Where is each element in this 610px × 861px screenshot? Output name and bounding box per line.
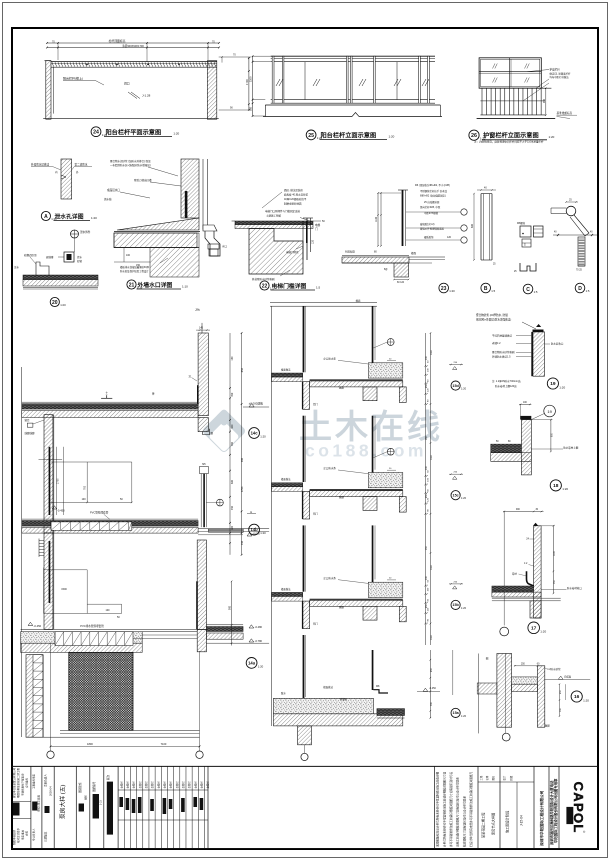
svg-text:24: 24 <box>93 130 99 136</box>
svg-text:干挂石材幕墙做法: 干挂石材幕墙做法 <box>492 333 513 337</box>
svg-text:均布中距栏杆做法: 均布中距栏杆做法 <box>550 75 570 79</box>
svg-text:会签栏: 会签栏 <box>181 781 185 789</box>
svg-text:建设单位某某置业有限公司: 建设单位某某置业有限公司 <box>12 767 16 798</box>
svg-text:1:5: 1:5 <box>586 289 590 293</box>
svg-text:900: 900 <box>543 98 546 103</box>
svg-text:防水卷材上翻: 防水卷材上翻 <box>563 445 579 449</box>
svg-text:线脚线脚: 线脚线脚 <box>25 431 36 435</box>
svg-text:版次: 版次 <box>106 774 110 780</box>
svg-text:名称: 名称 <box>485 775 489 780</box>
svg-text:会签栏: 会签栏 <box>132 781 136 789</box>
svg-text:阳台栏杆平面示意图: 阳台栏杆平面示意图 <box>106 128 162 136</box>
svg-text:1:20: 1:20 <box>173 132 179 136</box>
svg-text:60厚配筋: 60厚配筋 <box>345 250 355 254</box>
svg-text:电梯门槛详图: 电梯门槛详图 <box>272 282 307 290</box>
svg-text:核对图纸尺寸如有疑问及时与设计单位联系: 核对图纸尺寸如有疑问及时与设计单位联系 <box>462 796 466 847</box>
svg-text:基准线或标高: 基准线或标高 <box>557 111 573 115</box>
svg-text:铝门: 铝门 <box>313 512 318 516</box>
svg-text:1:20: 1:20 <box>449 289 455 293</box>
svg-text:25: 25 <box>308 133 314 139</box>
svg-text:会签栏: 会签栏 <box>150 781 154 789</box>
svg-text:某某花园二期工程: 某某花园二期工程 <box>481 812 486 838</box>
svg-text:14a: 14a <box>248 660 256 665</box>
svg-text:楼板排水找坡层最薄处30厚: 楼板排水找坡层最薄处30厚 <box>120 265 150 269</box>
svg-text:外墙防水层做法: 外墙防水层做法 <box>31 163 50 167</box>
svg-text:350: 350 <box>231 441 234 446</box>
svg-text:-0.450: -0.450 <box>57 509 65 513</box>
svg-text:防水卷材收口: 防水卷材收口 <box>567 586 583 590</box>
svg-text:B: B <box>484 286 488 292</box>
svg-text:14b: 14b <box>250 527 258 532</box>
svg-text:踢脚: 踢脚 <box>339 605 344 609</box>
svg-text:净距900X90X1700: 净距900X90X1700 <box>122 44 144 48</box>
svg-text:60 120: 60 120 <box>397 282 405 284</box>
svg-text:1100: 1100 <box>249 76 253 82</box>
svg-text:深圳市福田区梅林路华阳国际设计大厦电话: 深圳市福田区梅林路华阳国际设计大厦电话 <box>549 780 554 845</box>
svg-text:15b: 15b <box>452 603 459 607</box>
svg-text:1:20: 1:20 <box>91 216 97 220</box>
svg-text:卷材: 卷材 <box>512 572 517 576</box>
svg-text:聚合物砂浆 (20厚防水, 防裂: 聚合物砂浆 (20厚防水, 防裂 <box>476 313 508 317</box>
svg-text:19: 19 <box>550 381 556 387</box>
svg-text:楼面: 楼面 <box>356 299 361 303</box>
svg-text:1:20: 1:20 <box>389 135 395 139</box>
svg-text:2016-04: 2016-04 <box>49 786 53 796</box>
svg-text:2750: 2750 <box>241 486 244 492</box>
svg-text:楼面做法: 楼面做法 <box>281 477 291 481</box>
svg-text:450: 450 <box>231 505 234 510</box>
svg-text:1800: 1800 <box>87 742 93 746</box>
svg-text:铝门: 铝门 <box>313 621 318 625</box>
svg-text:制图审核日期: 制图审核日期 <box>12 829 16 845</box>
svg-text:子项名称地下室泵房: 子项名称地下室泵房 <box>20 773 24 796</box>
svg-text:企口防水条: 企口防水条 <box>323 357 336 361</box>
svg-text:电梯门口预埋件与门槛固定连接: 电梯门口预埋件与门槛固定连接 <box>265 209 301 213</box>
svg-text:楼面做法: 楼面做法 <box>323 685 333 689</box>
svg-text:井道壁防水砂浆粉刷: 井道壁防水砂浆粉刷 <box>252 277 275 281</box>
svg-text:土木在线: 土木在线 <box>299 408 443 445</box>
svg-text:外墙水口详图: 外墙水口详图 <box>138 281 173 289</box>
svg-text:嵌缝膏: 嵌缝膏 <box>46 255 54 259</box>
svg-text:防潮层: 防潮层 <box>340 697 348 701</box>
svg-text:120: 120 <box>231 525 234 530</box>
svg-text:15a: 15a <box>453 711 460 715</box>
svg-text:18: 18 <box>553 483 559 489</box>
svg-text:工程: 工程 <box>479 775 483 780</box>
svg-text:70 25: 70 25 <box>576 270 582 272</box>
svg-text:楼面做法: 楼面做法 <box>281 368 291 372</box>
svg-text:会签: 会签 <box>25 830 29 836</box>
svg-text:老墙1:2: 老墙1:2 <box>492 341 501 345</box>
svg-text:16: 16 <box>574 694 580 700</box>
svg-text:会签栏: 会签栏 <box>175 781 179 789</box>
svg-text:深圳市华阳国际工程设计有限公司: 深圳市华阳国际工程设计有限公司 <box>539 790 544 846</box>
svg-text:阳台栏杆(楼上): 阳台栏杆(楼上) <box>63 76 83 81</box>
svg-text:1:20: 1:20 <box>540 630 546 634</box>
svg-text:1:5: 1:5 <box>491 289 495 293</box>
svg-text:护窗栏杆: 护窗栏杆 <box>550 68 561 72</box>
svg-text:600: 600 <box>231 479 234 484</box>
svg-text:1:20: 1:20 <box>461 714 467 718</box>
svg-text:450: 450 <box>231 392 234 397</box>
svg-text:450: 450 <box>241 540 244 545</box>
svg-text:合同编号: 合同编号 <box>25 777 29 788</box>
svg-text:1:5: 1:5 <box>316 285 321 289</box>
svg-text:华阳国际工程设计股份有限公司出图专用章: 华阳国际工程设计股份有限公司出图专用章 <box>553 778 558 843</box>
svg-text:泄水饰件: 泄水饰件 <box>80 230 91 234</box>
svg-text:1:20: 1:20 <box>461 496 467 500</box>
svg-text:-0.450: -0.450 <box>34 624 42 628</box>
svg-text:17: 17 <box>531 626 537 632</box>
svg-text:21: 21 <box>129 282 135 288</box>
svg-text:1:20: 1:20 <box>260 435 266 439</box>
svg-text:壁纸刀裁出凹槽: 壁纸刀裁出凹槽 <box>134 178 152 182</box>
svg-text:会签栏: 会签栏 <box>138 781 142 789</box>
svg-text:玻璃胶封(1:2): 玻璃胶封(1:2) <box>420 222 435 226</box>
svg-text:22: 22 <box>262 283 268 289</box>
svg-text:26: 26 <box>471 133 477 139</box>
svg-text:洞口: 洞口 <box>124 82 130 86</box>
svg-text:楼面做法: 楼面做法 <box>281 587 291 591</box>
svg-text:防水层及保护层见工程设计: 防水层及保护层见工程设计 <box>120 269 149 273</box>
svg-text:审定批准: 审定批准 <box>20 829 24 840</box>
svg-text:朝: 朝 <box>486 657 489 661</box>
svg-text:1:20: 1:20 <box>562 487 568 491</box>
svg-text:20: 20 <box>52 300 58 306</box>
svg-text:J-15: J-15 <box>100 800 103 805</box>
svg-text:会签栏: 会签栏 <box>162 781 166 789</box>
svg-text:聚合物水泥砂浆 (加防水剂掺合) 保温: 聚合物水泥砂浆 (加防水剂掺合) 保温 <box>110 159 151 163</box>
svg-text:泛水: 泛水 <box>14 265 20 269</box>
svg-text:项目负责人: 项目负责人 <box>44 774 48 787</box>
svg-text:1:20: 1:20 <box>549 135 555 139</box>
svg-text:图名: 图名 <box>491 775 495 780</box>
svg-text:玻璃爪件预埋锚固连接: 玻璃爪件预埋锚固连接 <box>420 227 445 231</box>
svg-text:电梯: 电梯 <box>315 223 321 227</box>
svg-text:图别建施: 图别建施 <box>78 782 82 793</box>
svg-text:注: 1.2厚JS防水700mm高,: 注: 1.2厚JS防水700mm高, <box>492 379 522 383</box>
svg-text:≡: ≡ <box>524 243 526 247</box>
svg-text:150: 150 <box>231 356 234 361</box>
svg-text:2900: 2900 <box>431 454 433 460</box>
svg-text:改施工前请仔细核对图纸尺寸如有疑问及时与设计单位联系: 改施工前请仔细核对图纸尺寸如有疑问及时与设计单位联系 <box>456 777 460 847</box>
svg-text:1:20: 1:20 <box>258 664 264 668</box>
svg-text:J%: J% <box>195 308 200 312</box>
svg-text:短管: 短管 <box>77 259 83 263</box>
svg-text:1:20: 1:20 <box>583 698 589 702</box>
svg-text:1:2防水砂浆: 1:2防水砂浆 <box>547 667 561 671</box>
svg-text:外墙防水做法1.5: 外墙防水做法1.5 <box>492 355 511 359</box>
svg-text:会签栏: 会签栏 <box>144 781 148 789</box>
svg-text:23: 23 <box>441 286 447 292</box>
svg-text:2900: 2900 <box>431 634 433 640</box>
svg-text:耐磨金刚砂地面: 耐磨金刚砂地面 <box>284 202 302 206</box>
svg-text:土建施工预留: 土建施工预留 <box>266 214 282 218</box>
svg-text:会签栏: 会签栏 <box>156 781 160 789</box>
svg-text:900: 900 <box>241 457 244 462</box>
svg-text:本图纸版权归设计单位所有未经许可不得复制修改施工前请仔细: 本图纸版权归设计单位所有未经许可不得复制修改施工前请仔细 <box>436 771 440 847</box>
svg-text:砼翻边压顶: 砼翻边压顶 <box>24 253 37 257</box>
svg-text:铝门: 铝门 <box>313 402 318 406</box>
svg-text:结构板 40 厚水泥砂浆: 结构板 40 厚水泥砂浆 <box>284 193 309 197</box>
svg-text:PVC排水管预埋套管: PVC排水管预埋套管 <box>80 624 104 628</box>
svg-text:会签栏: 会签栏 <box>200 781 204 789</box>
svg-text:100: 100 <box>106 609 111 612</box>
svg-text:M8螺栓: M8螺栓 <box>517 221 526 225</box>
svg-text:企口防水条: 企口防水条 <box>323 466 336 470</box>
svg-text:H: H <box>250 510 252 514</box>
svg-text:护窗栏杆立面示意图: 护窗栏杆立面示意图 <box>483 132 539 140</box>
svg-text:图号: 图号 <box>84 795 88 800</box>
svg-text:许可不得复制修改施工前请仔细核对图纸尺寸如有疑问及时与设: 许可不得复制修改施工前请仔细核对图纸尺寸如有疑问及时与设 <box>449 771 453 847</box>
svg-text:审核人签字日期: 审核人签字日期 <box>36 795 40 812</box>
svg-text:会签栏: 会签栏 <box>187 781 191 789</box>
svg-text:项目名称某某花园二期工程: 项目名称某某花园二期工程 <box>16 767 20 798</box>
svg-text:co188.com: co188.com <box>305 441 427 461</box>
svg-text:防水层收口: 防水层收口 <box>551 342 564 346</box>
svg-text:钢丝网)+饰面层(防水增强做法): 钢丝网)+饰面层(防水增强做法) <box>476 318 511 322</box>
svg-text:工程编号审定: 工程编号审定 <box>32 773 36 789</box>
svg-text:聚合物防水砂浆粉刷: 聚合物防水砂浆粉刷 <box>492 350 515 354</box>
svg-text:归设计单位所有未经许可不得复制修改施工前请仔细核对图纸尺: 归设计单位所有未经许可不得复制修改施工前请仔细核对图纸尺 <box>469 771 473 847</box>
svg-text:25 自攻螺丝固: 25 自攻螺丝固 <box>424 200 440 204</box>
svg-text:硬质胶垫: 硬质胶垫 <box>424 235 434 239</box>
svg-text:不锈钢管栏杆扶手 仿木纹: 不锈钢管栏杆扶手 仿木纹 <box>420 189 448 193</box>
svg-text:14c: 14c <box>251 431 259 436</box>
svg-text:120: 120 <box>447 236 452 239</box>
svg-text:900: 900 <box>229 605 232 610</box>
svg-text:会签栏: 会签栏 <box>193 781 197 789</box>
svg-text:第二道防水: 第二道防水 <box>75 163 88 167</box>
svg-text:A: A <box>44 214 48 220</box>
svg-text:1:20: 1:20 <box>559 385 565 389</box>
svg-text:阳台栏杆立面示意图: 阳台栏杆立面示意图 <box>321 131 377 139</box>
svg-text:泄水孔详图: 泄水孔详图 <box>55 213 84 221</box>
svg-text:1700: 1700 <box>245 79 249 85</box>
svg-text:计单位所有未经许可不得复制修改施工前请仔细核对图纸尺寸如: 计单位所有未经许可不得复制修改施工前请仔细核对图纸尺寸如 <box>442 771 446 847</box>
svg-text:踢脚: 踢脚 <box>545 724 550 728</box>
svg-text:1:5: 1:5 <box>534 290 538 294</box>
svg-text:泵房节点大样图: 泵房节点大样图 <box>491 813 496 835</box>
svg-text:2750: 2750 <box>57 478 60 484</box>
svg-text:竖向栏杆Φ25, 中距: 竖向栏杆Φ25, 中距 <box>420 205 441 209</box>
svg-text:150: 150 <box>250 106 253 111</box>
svg-text:中距Φ76钢管: 中距Φ76钢管 <box>424 211 439 215</box>
svg-text:校对设计签字: 校对设计签字 <box>16 827 20 843</box>
svg-text:一布四涂防水层+饰面层(防水增强层): 一布四涂防水层+饰面层(防水增强层) <box>110 163 151 167</box>
svg-text:水口: 水口 <box>222 244 228 248</box>
svg-text:会签栏: 会签栏 <box>119 781 123 789</box>
svg-text:Φ6 (顶层收头Φ8+Φ2, 不小于M8): Φ6 (顶层收头Φ8+Φ2, 不小于M8) <box>415 183 450 187</box>
svg-text:会签栏: 会签栏 <box>125 781 129 789</box>
svg-text:做法(2), 防踏面栏杆: 做法(2), 防踏面栏杆 <box>550 71 572 75</box>
svg-text:40厚C20细石砼找平: 40厚C20细石砼找平 <box>284 197 307 201</box>
svg-text:楼面: 楼面 <box>411 251 417 255</box>
svg-text:成品铝水口: 成品铝水口 <box>107 188 120 192</box>
svg-text:300: 300 <box>231 424 234 429</box>
svg-text:19: 19 <box>547 409 552 414</box>
svg-text:800: 800 <box>471 223 474 228</box>
svg-text:门: 门 <box>315 227 318 231</box>
svg-text:J-15-04: J-15-04 <box>520 815 524 826</box>
svg-text:完成面: 完成面 <box>564 675 572 679</box>
svg-text:防水卷材上翻120高: 防水卷材上翻120高 <box>495 384 517 388</box>
svg-text:滴水线: 滴水线 <box>104 197 112 201</box>
svg-text:±0.000建筑: ±0.000建筑 <box>249 402 263 406</box>
svg-text:日期版本: 日期版本 <box>44 831 48 842</box>
svg-text:100: 100 <box>126 254 131 257</box>
svg-text:15c: 15c <box>453 494 459 498</box>
svg-text:土: 土 <box>105 391 108 395</box>
svg-text:企口防水条: 企口防水条 <box>323 576 336 580</box>
svg-text:100: 100 <box>82 498 87 501</box>
svg-text:120: 120 <box>312 239 315 244</box>
svg-text:PVC管预埋套管: PVC管预埋套管 <box>90 511 109 515</box>
svg-text:会签栏: 会签栏 <box>206 781 210 789</box>
svg-text:2900: 2900 <box>431 564 433 570</box>
svg-text:7100: 7100 <box>161 742 167 746</box>
svg-text:1100: 1100 <box>554 550 556 556</box>
svg-text:栏杆顶面标高: 栏杆顶面标高 <box>109 39 126 43</box>
svg-text:会签栏: 会签栏 <box>169 781 173 789</box>
svg-text:泄水: 泄水 <box>77 255 83 259</box>
svg-text:踢脚: 踢脚 <box>339 386 344 390</box>
svg-text:C: C <box>526 287 530 293</box>
svg-text:施工图设计阶段: 施工图设计阶段 <box>505 810 510 833</box>
svg-text:Φ89+Φ2 (含加强筋固定): Φ89+Φ2 (含加强筋固定) <box>420 194 446 198</box>
svg-text:踢脚: 踢脚 <box>339 495 344 499</box>
svg-text:2900: 2900 <box>431 349 433 355</box>
svg-text:D: D <box>578 286 582 292</box>
svg-text:1:20: 1:20 <box>461 606 467 610</box>
svg-text:-0.480: -0.480 <box>255 625 263 629</box>
svg-text:700: 700 <box>84 485 87 490</box>
svg-text:1100: 1100 <box>375 216 378 222</box>
svg-text:阶段: 阶段 <box>509 775 513 780</box>
svg-text:散水: 散水 <box>281 691 286 695</box>
svg-text:850: 850 <box>241 368 244 373</box>
svg-text:面层, 做法见装修: 面层, 做法见装修 <box>284 188 303 192</box>
svg-text:设计: 设计 <box>502 775 506 780</box>
svg-text:窗台: 窗台 <box>25 418 31 422</box>
svg-text:图纸编号: 图纸编号 <box>92 781 96 792</box>
svg-text:1:10: 1:10 <box>182 284 188 288</box>
svg-text:1:20: 1:20 <box>260 531 266 535</box>
svg-text:1:20: 1:20 <box>60 303 66 307</box>
svg-text:泵房大样 (五): 泵房大样 (五) <box>59 784 67 819</box>
svg-text:1:20: 1:20 <box>461 387 467 391</box>
svg-text:145: 145 <box>199 326 204 329</box>
svg-text:专业负责人: 专业负责人 <box>32 828 36 841</box>
svg-text:电梯门地坎: 电梯门地坎 <box>286 250 299 254</box>
svg-text:注：内侧预埋(2)，此处预埋中间栏杆间距不大于110米承重栏: 注：内侧预埋(2)，此处预埋中间栏杆间距不大于110米承重栏杆 <box>474 140 544 144</box>
svg-text:15d: 15d <box>452 384 459 388</box>
svg-text:1500: 1500 <box>61 588 67 591</box>
svg-text:-0.780: -0.780 <box>255 639 263 643</box>
svg-text:J-1.28: J-1.28 <box>142 94 151 98</box>
